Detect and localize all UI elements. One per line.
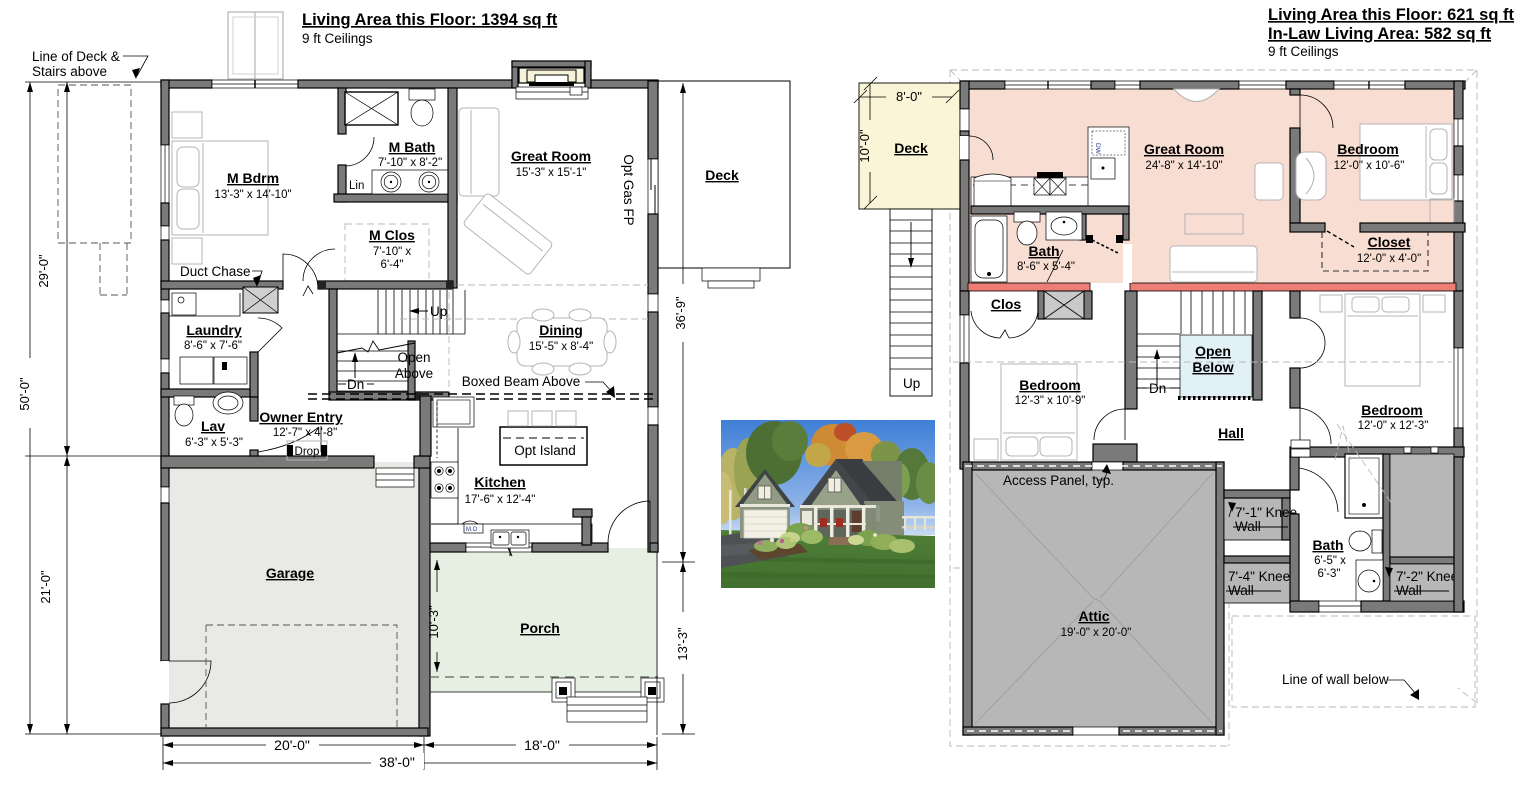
svg-text:Hall: Hall <box>1218 425 1244 441</box>
svg-text:Wall: Wall <box>1228 583 1254 598</box>
svg-text:15'-3" x 15'-1": 15'-3" x 15'-1" <box>516 167 587 179</box>
svg-text:M.O: M.O <box>466 527 478 533</box>
svg-text:Duct Chase: Duct Chase <box>180 264 251 279</box>
svg-text:6'-3": 6'-3" <box>1318 568 1341 580</box>
svg-text:12'-7" x 4'-8": 12'-7" x 4'-8" <box>273 427 337 439</box>
svg-text:8'-6" x 5'-4": 8'-6" x 5'-4" <box>1017 261 1075 273</box>
svg-text:29'-0": 29'-0" <box>36 254 51 288</box>
svg-text:Great Room: Great Room <box>511 148 591 164</box>
svg-text:Dn: Dn <box>347 377 364 392</box>
svg-text:Attic: Attic <box>1078 608 1109 624</box>
svg-text:10'-3": 10'-3" <box>426 605 441 639</box>
svg-text:6'-4": 6'-4" <box>381 259 404 271</box>
svg-text:7'-4" Knee: 7'-4" Knee <box>1228 569 1290 584</box>
svg-text:Living Area this Floor: 1394 s: Living Area this Floor: 1394 sq ft <box>302 11 558 29</box>
svg-text:18'-0": 18'-0" <box>524 737 560 753</box>
svg-text:Deck: Deck <box>705 167 739 183</box>
svg-text:Open: Open <box>1195 343 1231 359</box>
svg-text:7'-10" x 8'-2": 7'-10" x 8'-2" <box>378 157 442 169</box>
svg-text:Garage: Garage <box>266 565 314 581</box>
svg-text:Clos: Clos <box>991 296 1022 312</box>
svg-text:38'-0": 38'-0" <box>379 754 415 770</box>
svg-text:Up: Up <box>903 376 920 391</box>
svg-text:20'-0": 20'-0" <box>274 737 310 753</box>
svg-text:21'-0": 21'-0" <box>38 570 53 604</box>
svg-text:13'-3" x 14'-10": 13'-3" x 14'-10" <box>214 189 291 201</box>
svg-text:12'-0" x 12'-3": 12'-0" x 12'-3" <box>1358 420 1429 432</box>
svg-text:19'-0" x 20'-0": 19'-0" x 20'-0" <box>1061 627 1132 639</box>
svg-text:Great Room: Great Room <box>1144 141 1224 157</box>
svg-text:12'-0" x 10'-6": 12'-0" x 10'-6" <box>1334 160 1405 172</box>
svg-text:Bedroom: Bedroom <box>1337 141 1398 157</box>
svg-text:Kitchen: Kitchen <box>474 474 525 490</box>
svg-text:Opt Gas FP: Opt Gas FP <box>621 154 636 225</box>
svg-text:Wall: Wall <box>1396 583 1422 598</box>
svg-text:13'-3": 13'-3" <box>675 627 690 661</box>
svg-text:Open: Open <box>397 350 430 365</box>
svg-text:Line of Deck &: Line of Deck & <box>32 49 120 64</box>
svg-text:Closet: Closet <box>1368 234 1411 250</box>
svg-text:Drop: Drop <box>295 446 320 458</box>
svg-text:M Bdrm: M Bdrm <box>227 170 279 186</box>
svg-text:7'-2" Knee: 7'-2" Knee <box>1396 569 1458 584</box>
svg-text:Boxed Beam Above: Boxed Beam Above <box>462 374 581 389</box>
svg-text:8'-6" x 7'-6": 8'-6" x 7'-6" <box>184 340 242 352</box>
svg-text:Access Panel, typ.: Access Panel, typ. <box>1003 473 1114 488</box>
svg-text:6'-5" x: 6'-5" x <box>1314 555 1346 567</box>
svg-text:DW: DW <box>1094 143 1101 155</box>
svg-text:9 ft Ceilings: 9 ft Ceilings <box>302 31 373 46</box>
svg-text:10'-0": 10'-0" <box>857 129 872 163</box>
svg-text:Deck: Deck <box>894 140 928 156</box>
svg-text:M Clos: M Clos <box>369 227 415 243</box>
svg-text:12'-3" x 10'-9": 12'-3" x 10'-9" <box>1015 395 1086 407</box>
svg-text:Opt Island: Opt Island <box>514 443 576 458</box>
svg-text:Dining: Dining <box>539 322 583 338</box>
svg-text:7'-10" x: 7'-10" x <box>373 246 411 258</box>
svg-text:Lav: Lav <box>201 418 225 434</box>
svg-text:9 ft Ceilings: 9 ft Ceilings <box>1268 44 1339 59</box>
svg-text:Above: Above <box>395 366 433 381</box>
svg-text:Living Area this Floor: 621 sq: Living Area this Floor: 621 sq ft <box>1268 6 1515 24</box>
svg-text:Line of wall below: Line of wall below <box>1282 672 1389 687</box>
svg-text:Bath: Bath <box>1028 243 1059 259</box>
svg-text:36'-9": 36'-9" <box>673 296 688 330</box>
svg-text:Laundry: Laundry <box>186 322 241 338</box>
svg-text:50'-0": 50'-0" <box>17 377 32 411</box>
svg-text:Bedroom: Bedroom <box>1019 377 1080 393</box>
svg-text:8'-0": 8'-0" <box>896 89 922 104</box>
svg-text:Up: Up <box>430 304 447 319</box>
svg-text:Bath: Bath <box>1312 537 1343 553</box>
svg-text:Porch: Porch <box>520 620 560 636</box>
svg-text:24'-8" x 14'-10": 24'-8" x 14'-10" <box>1145 160 1222 172</box>
svg-text:Stairs above: Stairs above <box>32 64 107 79</box>
svg-text:7'-1" Knee: 7'-1" Knee <box>1235 505 1297 520</box>
svg-text:6'-3" x 5'-3": 6'-3" x 5'-3" <box>185 437 243 449</box>
svg-text:12'-0" x 4'-0": 12'-0" x 4'-0" <box>1357 253 1421 265</box>
svg-text:M Bath: M Bath <box>389 139 436 155</box>
svg-text:Below: Below <box>1192 359 1233 375</box>
svg-text:Dn: Dn <box>1149 381 1166 396</box>
svg-text:Owner Entry: Owner Entry <box>259 409 342 425</box>
svg-text:Bedroom: Bedroom <box>1361 402 1422 418</box>
svg-text:Lin: Lin <box>349 180 364 192</box>
svg-text:15'-5" x 8'-4": 15'-5" x 8'-4" <box>529 341 593 353</box>
svg-text:Wall: Wall <box>1235 519 1261 534</box>
svg-text:In-Law Living Area: 582 sq ft: In-Law Living Area: 582 sq ft <box>1268 25 1492 43</box>
svg-text:17'-6" x 12'-4": 17'-6" x 12'-4" <box>465 494 536 506</box>
